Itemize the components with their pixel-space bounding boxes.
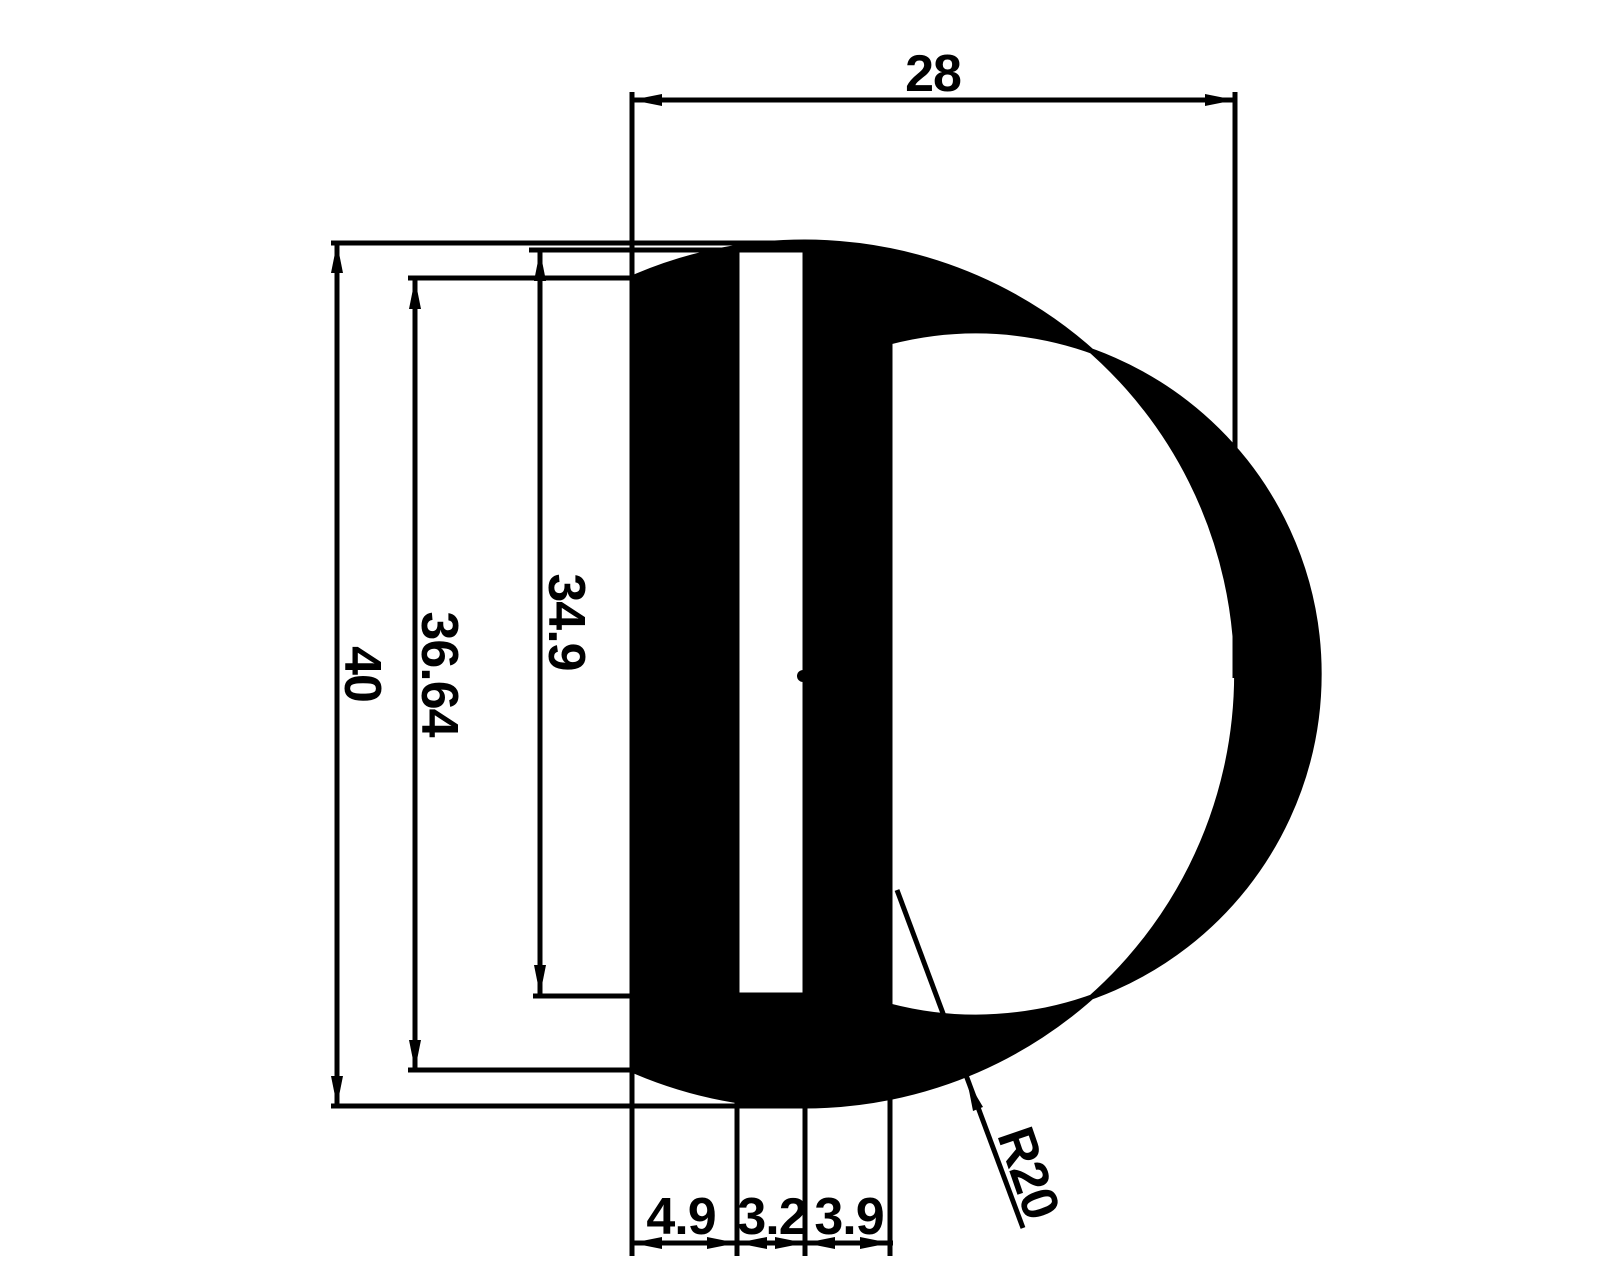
arrow-349-top <box>534 251 546 281</box>
arrow-40-bottom <box>331 1076 343 1106</box>
arrow-3664-top <box>409 279 421 309</box>
arrow-3664-bottom <box>409 1040 421 1070</box>
arrow-40-top <box>331 243 343 273</box>
dim-label-right-wall-width: 3.9 <box>789 1190 909 1244</box>
dim-label-overall-width: 28 <box>873 47 993 101</box>
technical-drawing-canvas: 28 40 36.64 34.9 4.9 3.2 3.9 R20 <box>0 0 1600 1280</box>
arrow-28-left <box>632 94 662 106</box>
arrow-28-right <box>1205 94 1235 106</box>
profile-drawing-svg <box>0 0 1600 1280</box>
arc-center-mark <box>797 670 809 682</box>
d-profile-shape <box>632 242 1319 1106</box>
arrow-349-bottom <box>534 965 546 995</box>
dim-label-flat-side-height: 36.64 <box>412 589 466 759</box>
dim-label-overall-height: 40 <box>335 614 389 734</box>
dim-label-slot-height: 34.9 <box>539 537 593 707</box>
arrow-radius-leader <box>967 1080 983 1111</box>
